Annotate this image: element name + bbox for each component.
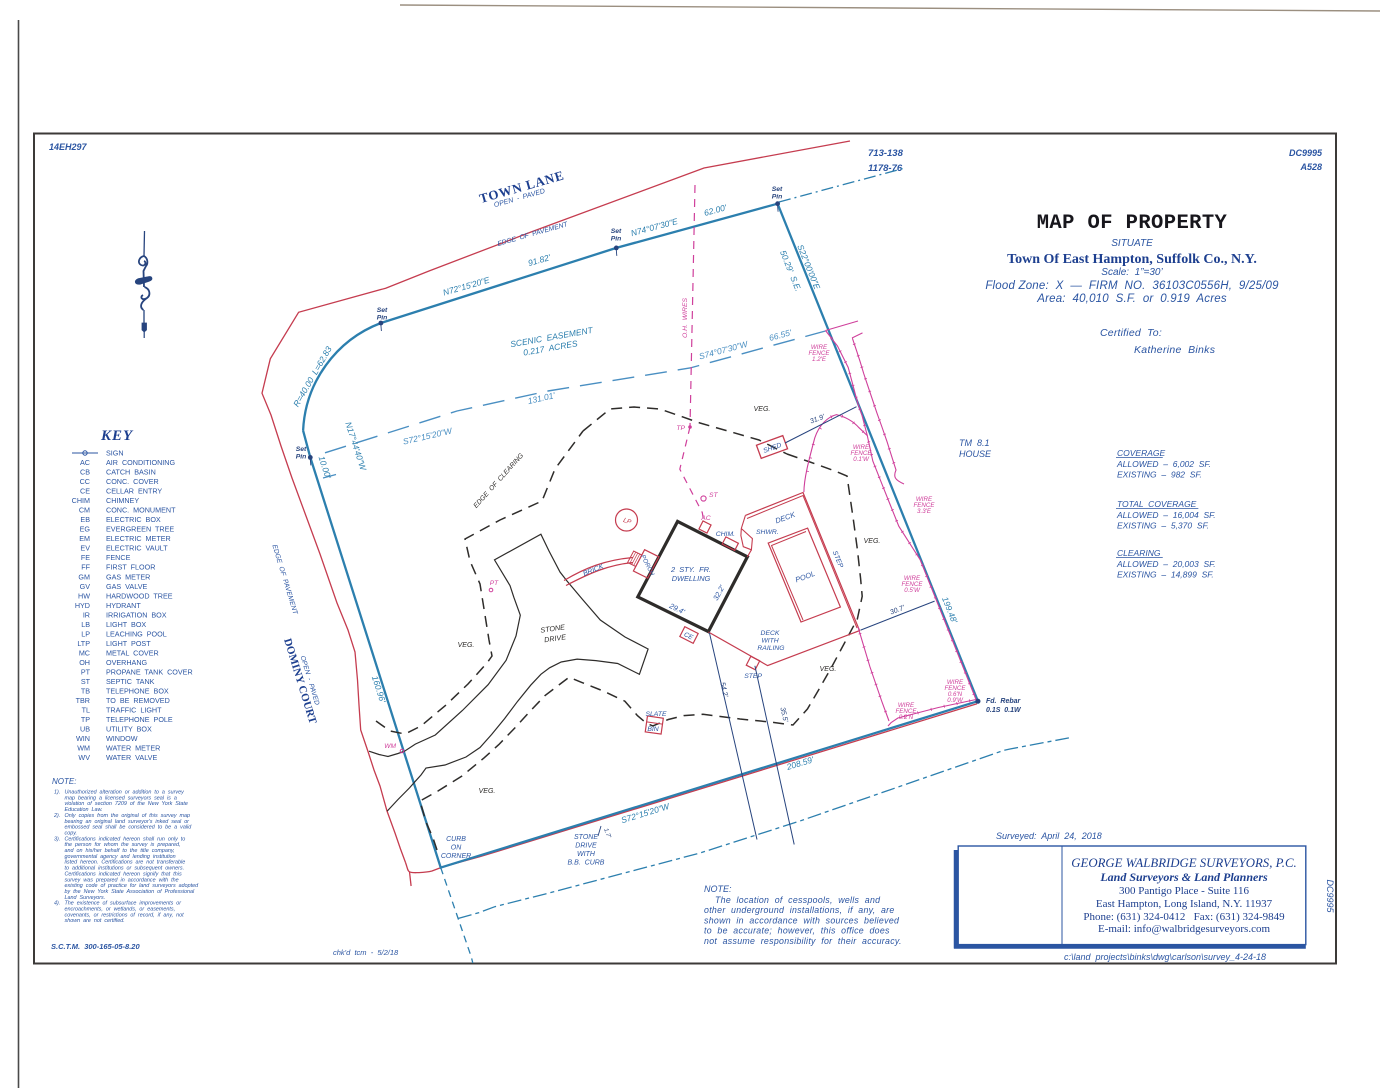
svg-text:DRIVE: DRIVE	[575, 843, 597, 850]
svg-text:DC9995: DC9995	[1289, 148, 1323, 158]
svg-text:PROPANE TANK COVER: PROPANE TANK COVER	[106, 667, 193, 676]
svg-text:HARDWOOD TREE: HARDWOOD TREE	[106, 591, 173, 600]
svg-text:ON: ON	[451, 845, 462, 852]
svg-text:SLATE: SLATE	[645, 711, 666, 718]
svg-text:VEG.: VEG.	[458, 642, 475, 649]
svg-text:UB: UB	[80, 725, 90, 734]
svg-text:HOUSE: HOUSE	[959, 449, 992, 459]
svg-text:CM: CM	[79, 506, 90, 515]
svg-text:RAILING: RAILING	[757, 645, 784, 652]
svg-text:c:\land projects\binks\dwg\ca: c:\land projects\binks\dwg\carlson\surve…	[1064, 952, 1266, 962]
svg-text:ALLOWED – 16,004 SF.: ALLOWED – 16,004 SF.	[1116, 510, 1216, 520]
svg-text:BIN: BIN	[647, 726, 658, 733]
svg-text:FF: FF	[81, 563, 90, 572]
svg-text:AC: AC	[700, 515, 711, 522]
svg-text:FENCE: FENCE	[106, 553, 131, 562]
svg-text:0.1'W: 0.1'W	[853, 456, 870, 463]
svg-text:Set: Set	[611, 228, 622, 235]
svg-text:CC: CC	[80, 477, 90, 486]
svg-text:VEG.: VEG.	[754, 406, 771, 413]
svg-text:PT: PT	[81, 667, 91, 676]
svg-text:HYDRANT: HYDRANT	[106, 601, 141, 610]
svg-text:VEG.: VEG.	[479, 788, 496, 795]
svg-text:CATCH BASIN: CATCH BASIN	[106, 468, 156, 477]
svg-text:TELEPHONE POLE: TELEPHONE POLE	[106, 715, 173, 724]
svg-text:LIGHT BOX: LIGHT BOX	[106, 620, 146, 629]
svg-text:Town Of East Hampton, Suffolk: Town Of East Hampton, Suffolk Co., N.Y.	[1007, 252, 1257, 267]
svg-text:CELLAR ENTRY: CELLAR ENTRY	[106, 487, 162, 496]
svg-text:CORNER: CORNER	[441, 853, 471, 860]
svg-text:0.9'W: 0.9'W	[947, 697, 964, 704]
svg-text:Phone: (631) 324-0412 Fax: (: Phone: (631) 324-0412 Fax: (631) 324-984…	[1083, 911, 1285, 923]
svg-text:CHIM: CHIM	[72, 496, 90, 505]
svg-text:SIGN: SIGN	[106, 449, 124, 458]
svg-text:CHIM.: CHIM.	[716, 531, 735, 538]
svg-text:IR: IR	[83, 610, 90, 619]
svg-text:AIR CONDITIONING: AIR CONDITIONING	[106, 458, 175, 467]
svg-text:GM: GM	[78, 572, 90, 581]
svg-text:TRAFFIC LIGHT: TRAFFIC LIGHT	[106, 706, 162, 715]
svg-text:WINDOW: WINDOW	[106, 734, 138, 743]
svg-text:S.C.T.M. 300-165-05-8.20: S.C.T.M. 300-165-05-8.20	[51, 942, 140, 951]
svg-text:GAS VALVE: GAS VALVE	[106, 582, 147, 591]
svg-text:Land Surveyors & Land Planners: Land Surveyors & Land Planners	[1099, 870, 1268, 884]
svg-text:ELECTRIC METER: ELECTRIC METER	[106, 534, 171, 543]
svg-text:WATER VALVE: WATER VALVE	[106, 753, 157, 762]
svg-text:embossed seal shall be con: embossed seal shall be considered to be …	[65, 825, 193, 831]
svg-text:ALLOWED – 20,003 SF.: ALLOWED – 20,003 SF.	[1116, 559, 1216, 569]
svg-text:EXISTING – 5,370 SF.: EXISTING – 5,370 SF.	[1117, 521, 1209, 531]
svg-text:LB: LB	[81, 620, 90, 629]
svg-text:Area: 40,010 S.F. or 0.919: Area: 40,010 S.F. or 0.919 Acres	[1036, 293, 1227, 305]
svg-text:to be accurate; however, t: to be accurate; however, this office doe…	[704, 926, 890, 936]
svg-text:Surveyed: April 24, 2018: Surveyed: April 24, 2018	[996, 831, 1102, 841]
svg-text:TP: TP	[81, 715, 90, 724]
svg-text:CHIMNEY: CHIMNEY	[106, 496, 139, 505]
svg-text:ELECTRIC BOX: ELECTRIC BOX	[106, 515, 161, 524]
svg-text:METAL COVER: METAL COVER	[106, 648, 159, 657]
svg-text:AC: AC	[80, 458, 90, 467]
svg-text:HW: HW	[78, 591, 90, 600]
svg-text:WV: WV	[78, 753, 90, 762]
svg-text:3.3'E: 3.3'E	[917, 508, 932, 515]
svg-text:TBR: TBR	[76, 696, 90, 705]
svg-text:EVERGREEN TREE: EVERGREEN TREE	[106, 525, 174, 534]
svg-text:Scale: 1”=30’: Scale: 1”=30’	[1101, 267, 1163, 278]
svg-text:Pin: Pin	[611, 236, 622, 243]
svg-text:not assume responsibility f: not assume responsibility for their accu…	[704, 936, 902, 946]
svg-text:IRRIGATION BOX: IRRIGATION BOX	[106, 610, 167, 619]
svg-text:Fd. Rebar: Fd. Rebar	[986, 698, 1022, 705]
svg-text:PT: PT	[490, 580, 499, 587]
svg-text:ALLOWED – 6,002 SF.: ALLOWED – 6,002 SF.	[1116, 459, 1211, 469]
svg-text:OVERHANG: OVERHANG	[106, 658, 148, 667]
svg-text:SHWR.: SHWR.	[756, 529, 779, 536]
svg-text:B.B. CURB: B.B. CURB	[568, 860, 605, 867]
svg-text:WITH: WITH	[577, 851, 596, 858]
svg-text:GAS METER: GAS METER	[106, 572, 150, 581]
svg-text:CB: CB	[80, 468, 90, 477]
svg-text:Pin: Pin	[772, 194, 783, 201]
svg-text:A528: A528	[1299, 162, 1322, 172]
svg-text:CONC. COVER: CONC. COVER	[106, 477, 159, 486]
svg-text:OH: OH	[79, 658, 90, 667]
svg-text:WM: WM	[77, 744, 90, 753]
svg-text:Set: Set	[296, 446, 307, 453]
svg-text:GV: GV	[80, 582, 91, 591]
svg-text:WIN: WIN	[76, 734, 90, 743]
svg-text:ST: ST	[709, 492, 719, 499]
svg-text:CURB: CURB	[446, 836, 466, 843]
svg-text:SEPTIC TANK: SEPTIC TANK	[106, 677, 155, 686]
svg-text:Pin: Pin	[377, 315, 388, 322]
svg-text:4).: 4).	[54, 901, 60, 907]
svg-text:SITUATE: SITUATE	[1111, 238, 1153, 249]
svg-text:STONE: STONE	[574, 834, 598, 841]
svg-text:East Hampton, Long Island, N.Y: East Hampton, Long Island, N.Y. 11937	[1096, 898, 1273, 910]
svg-text:UTILITY BOX: UTILITY BOX	[106, 725, 152, 734]
svg-text:WM: WM	[384, 743, 396, 750]
svg-text:EB: EB	[80, 515, 90, 524]
svg-text:GEORGE WALBRIDGE SURVEYORS, P.: GEORGE WALBRIDGE SURVEYORS, P.C.	[1071, 856, 1296, 870]
svg-text:NOTE:: NOTE:	[704, 884, 732, 894]
svg-text:MC: MC	[79, 648, 90, 657]
svg-text:KEY: KEY	[100, 428, 134, 444]
svg-text:E-mail: info@walbridgesurveyor: E-mail: info@walbridgesurveyors.com	[1098, 923, 1270, 935]
svg-text:ELECTRIC VAULT: ELECTRIC VAULT	[106, 544, 168, 553]
svg-text:TO BE REMOVED: TO BE REMOVED	[106, 696, 170, 705]
svg-text:The location of cesspools,: The location of cesspools, wells and	[704, 895, 881, 905]
svg-text:DWELLING: DWELLING	[672, 574, 711, 583]
svg-text:FIRST FLOOR: FIRST FLOOR	[106, 563, 155, 572]
svg-text:Katherine Binks: Katherine Binks	[1134, 344, 1216, 356]
svg-text:EG: EG	[80, 525, 91, 534]
svg-text:EXISTING – 14,899 SF.: EXISTING – 14,899 SF.	[1117, 570, 1214, 580]
svg-text:1.2'E: 1.2'E	[812, 356, 827, 363]
svg-text:CONC. MONUMENT: CONC. MONUMENT	[106, 506, 176, 515]
svg-text:other underground installati: other underground installations, if any,…	[704, 905, 895, 915]
svg-text:VEG.: VEG.	[820, 666, 837, 673]
svg-text:VEG.: VEG.	[864, 538, 881, 545]
svg-text:Set: Set	[772, 186, 783, 193]
svg-text:EV: EV	[80, 544, 90, 553]
svg-text:Pin: Pin	[296, 454, 307, 461]
svg-text:TELEPHONE BOX: TELEPHONE BOX	[106, 687, 169, 696]
svg-text:shown in accordance with s: shown in accordance with sources believe…	[704, 915, 900, 925]
svg-text:TP: TP	[676, 425, 685, 432]
svg-text:LTP: LTP	[77, 639, 90, 648]
svg-text:Set: Set	[377, 307, 388, 314]
svg-text:TL: TL	[82, 706, 90, 715]
svg-text:0.1S 0.1W: 0.1S 0.1W	[986, 707, 1022, 714]
svg-text:2 STY. FR.: 2 STY. FR.	[670, 565, 711, 574]
svg-text:ST: ST	[81, 677, 91, 686]
svg-text:WATER METER: WATER METER	[106, 744, 160, 753]
svg-text:HYD: HYD	[75, 601, 90, 610]
svg-text:STEP: STEP	[744, 673, 762, 680]
svg-text:WITH: WITH	[761, 638, 778, 645]
svg-text:0.5'W: 0.5'W	[904, 587, 921, 594]
svg-text:713-138: 713-138	[868, 148, 904, 159]
svg-text:TOTAL COVERAGE: TOTAL COVERAGE	[1117, 499, 1197, 509]
svg-text:14EH297: 14EH297	[49, 142, 88, 152]
svg-text:DC9995: DC9995	[1325, 879, 1335, 913]
svg-text:0.2'N: 0.2'N	[899, 714, 914, 721]
svg-text:CE: CE	[80, 487, 90, 496]
svg-text:CLEARING: CLEARING	[1117, 548, 1161, 558]
svg-text:FE: FE	[81, 553, 90, 562]
svg-text:TM 8.1: TM 8.1	[959, 438, 990, 448]
svg-text:Flood Zone: X — FIRM NO.: Flood Zone: X — FIRM NO. 36103C0556H, 9/…	[985, 280, 1279, 292]
svg-text:chk'd tcm - 5/2/18: chk'd tcm - 5/2/18	[333, 948, 399, 957]
svg-text:2).: 2).	[53, 813, 60, 819]
svg-text:MAP OF PROPERTY: MAP OF PROPERTY	[1037, 212, 1228, 235]
svg-text:LEACHING POOL: LEACHING POOL	[106, 629, 167, 638]
svg-text:300 Pantigo Place - Suite 116: 300 Pantigo Place - Suite 116	[1119, 885, 1250, 897]
svg-text:NOTE:: NOTE:	[52, 777, 76, 786]
svg-text:EM: EM	[79, 534, 90, 543]
svg-text:1).: 1).	[54, 790, 60, 796]
svg-text:DECK: DECK	[761, 630, 780, 637]
svg-text:shown are not certified.: shown are not certified.	[65, 918, 125, 924]
svg-text:EXISTING – 982 SF.: EXISTING – 982 SF.	[1117, 470, 1202, 480]
svg-text:O.H. WIRES: O.H. WIRES	[682, 298, 689, 338]
svg-text:COVERAGE: COVERAGE	[1117, 448, 1166, 458]
svg-text:LP: LP	[81, 629, 90, 638]
svg-text:3).: 3).	[54, 836, 60, 842]
svg-text:1178-76: 1178-76	[868, 163, 903, 174]
svg-text:TB: TB	[81, 687, 90, 696]
svg-text:Certified To:: Certified To:	[1100, 327, 1162, 339]
svg-text:LIGHT POST: LIGHT POST	[106, 639, 151, 648]
